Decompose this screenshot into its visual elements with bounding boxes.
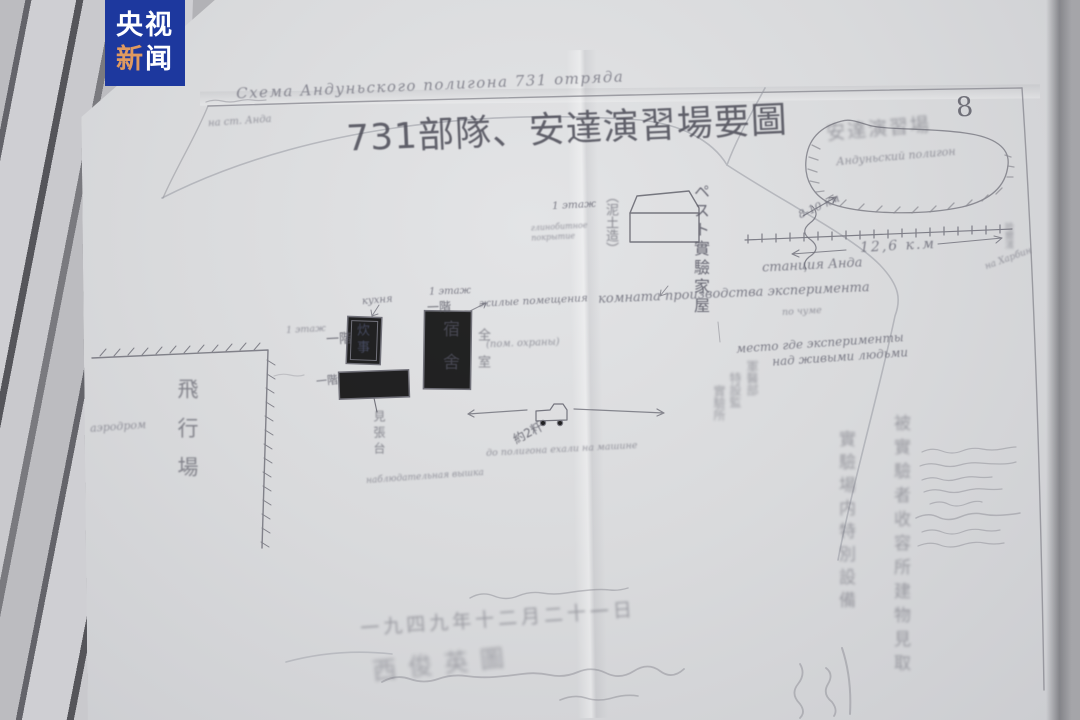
margin-cluster-3: 實驗所 — [711, 385, 728, 421]
watermark-row2: 新闻 — [116, 43, 174, 77]
photo-of-document: Схема Андуньского полигона 731 отряда на… — [0, 0, 1080, 720]
rooms-label-arrow — [470, 303, 720, 342]
house-floor-label: 1 этаж — [552, 198, 597, 212]
watermark-row1: 央视 — [116, 9, 174, 43]
dorm-annex: 全室 — [473, 328, 492, 382]
margin-column-left: 實驗場内特別設備 — [833, 430, 858, 614]
tower-name: 見張台 — [371, 410, 388, 458]
barrack-floor-zh: 一階 — [315, 371, 339, 389]
cctv-news-watermark: 央视 新闻 — [105, 0, 185, 86]
site-boundary-curve — [162, 88, 898, 662]
margin-cluster-2: 特設監 — [727, 372, 744, 408]
dorm-name: 宿舍 — [437, 320, 462, 386]
dorm-floor-ru: 1 этаж — [429, 285, 471, 297]
watermark-accent-char: 新 — [116, 44, 145, 75]
kitchen-label-arrow — [371, 305, 379, 316]
plague-room-label2: по чуме — [782, 305, 822, 318]
margin-column-right: 被實驗者收容所建物見取 — [888, 414, 913, 678]
airfield-label-zh: 飛行場 — [172, 378, 202, 495]
watermark-row2-rest: 闻 — [145, 44, 174, 75]
page-number: 8 — [955, 91, 975, 123]
barrack-building-sketch — [339, 370, 410, 412]
kitchen-name: 炊事 — [352, 323, 371, 357]
to-harbin-label-zh: 哈爾濱 — [1002, 222, 1015, 249]
house-coating-label: глинобитное покрытие — [531, 220, 594, 243]
truck-route-arrows — [468, 409, 664, 417]
dorm-floor-zh: 一階 — [427, 298, 452, 316]
margin-cluster-1: 軍醫部 — [744, 360, 761, 396]
kitchen-floor-zh: 一階 — [326, 327, 353, 347]
kitchen-floor-ru: 1 этаж — [286, 323, 326, 336]
house-material-label: （泥土造） — [601, 190, 620, 255]
